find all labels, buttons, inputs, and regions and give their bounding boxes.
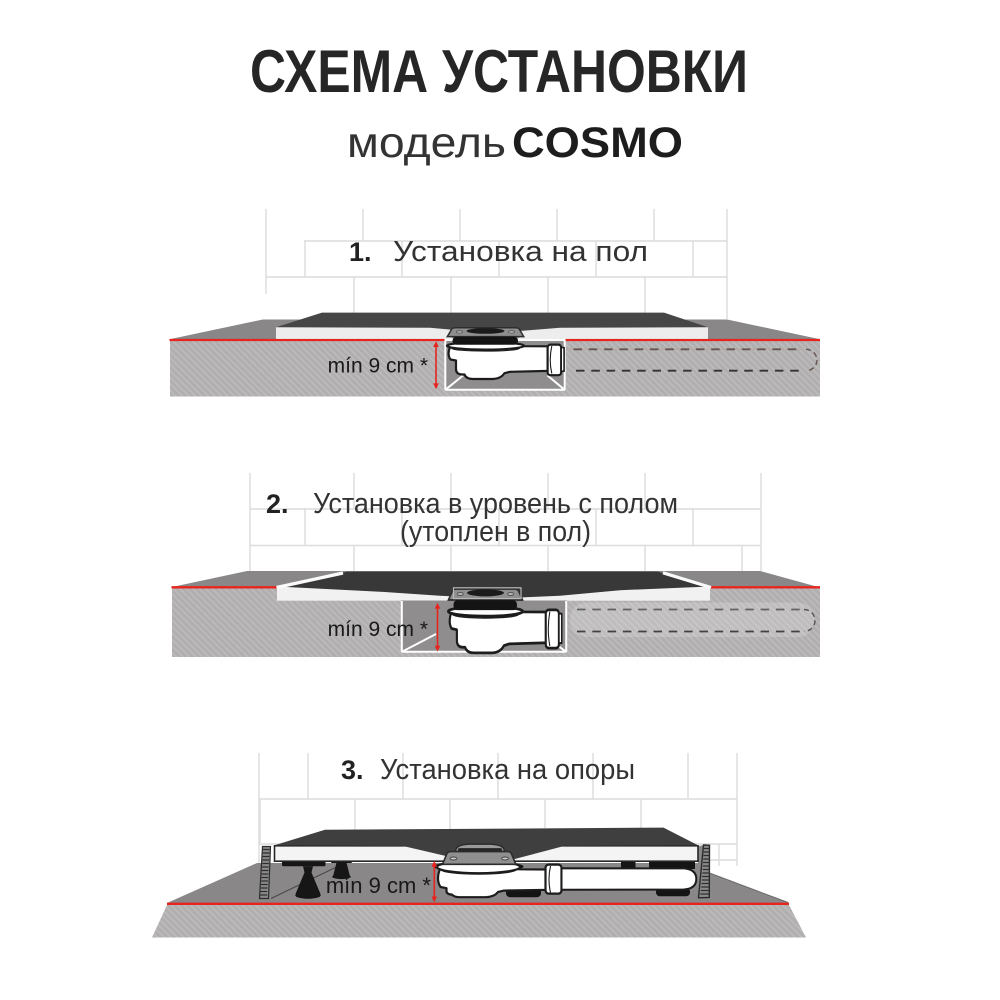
svg-text:СХЕМА УСТАНОВКИ: СХЕМА УСТАНОВКИ — [250, 38, 748, 105]
svg-text:Установка на пол: Установка на пол — [393, 236, 648, 268]
svg-text:модель: модель — [347, 119, 506, 167]
svg-text:(утоплен в пол): (утоплен в пол) — [400, 516, 591, 548]
svg-text:mín 9 cm *: mín 9 cm * — [328, 355, 428, 378]
svg-text:COSMO: COSMO — [512, 119, 683, 167]
svg-text:1.: 1. — [349, 237, 372, 267]
svg-text:3.: 3. — [341, 755, 364, 785]
svg-text:Установка на опоры: Установка на опоры — [380, 754, 635, 786]
svg-text:mín 9 cm *: mín 9 cm * — [326, 873, 432, 898]
svg-text:2.: 2. — [266, 489, 289, 519]
svg-text:mín 9 cm *: mín 9 cm * — [328, 618, 428, 641]
